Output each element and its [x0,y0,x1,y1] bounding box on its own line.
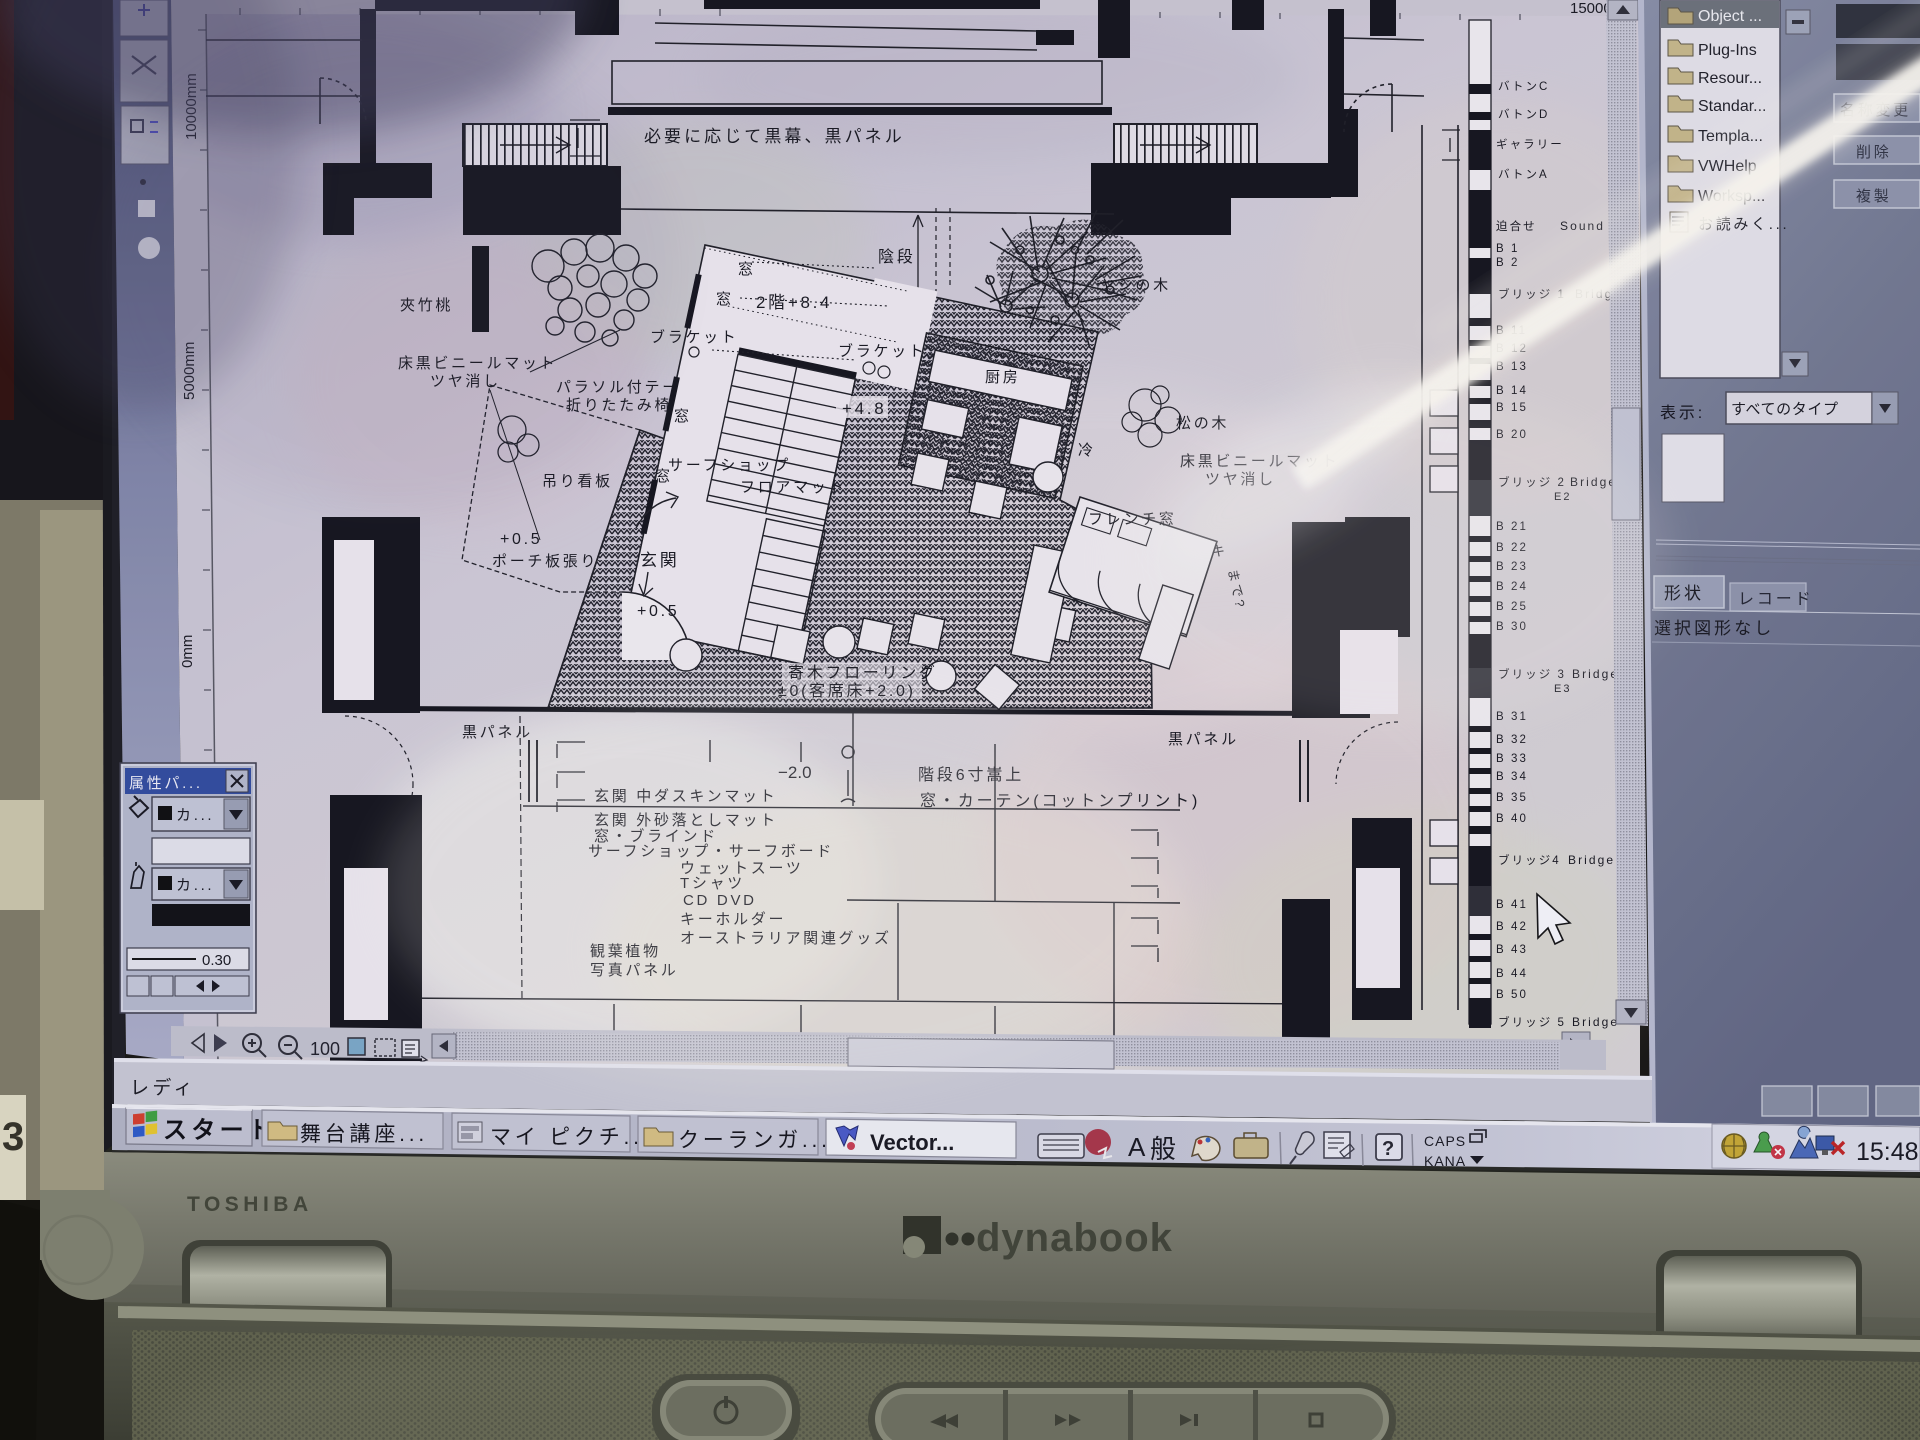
svg-text:TOSHIBA: TOSHIBA [187,1193,313,1216]
svg-text:dynabook: dynabook [976,1216,1173,1260]
svg-text:3: 3 [2,1115,24,1159]
